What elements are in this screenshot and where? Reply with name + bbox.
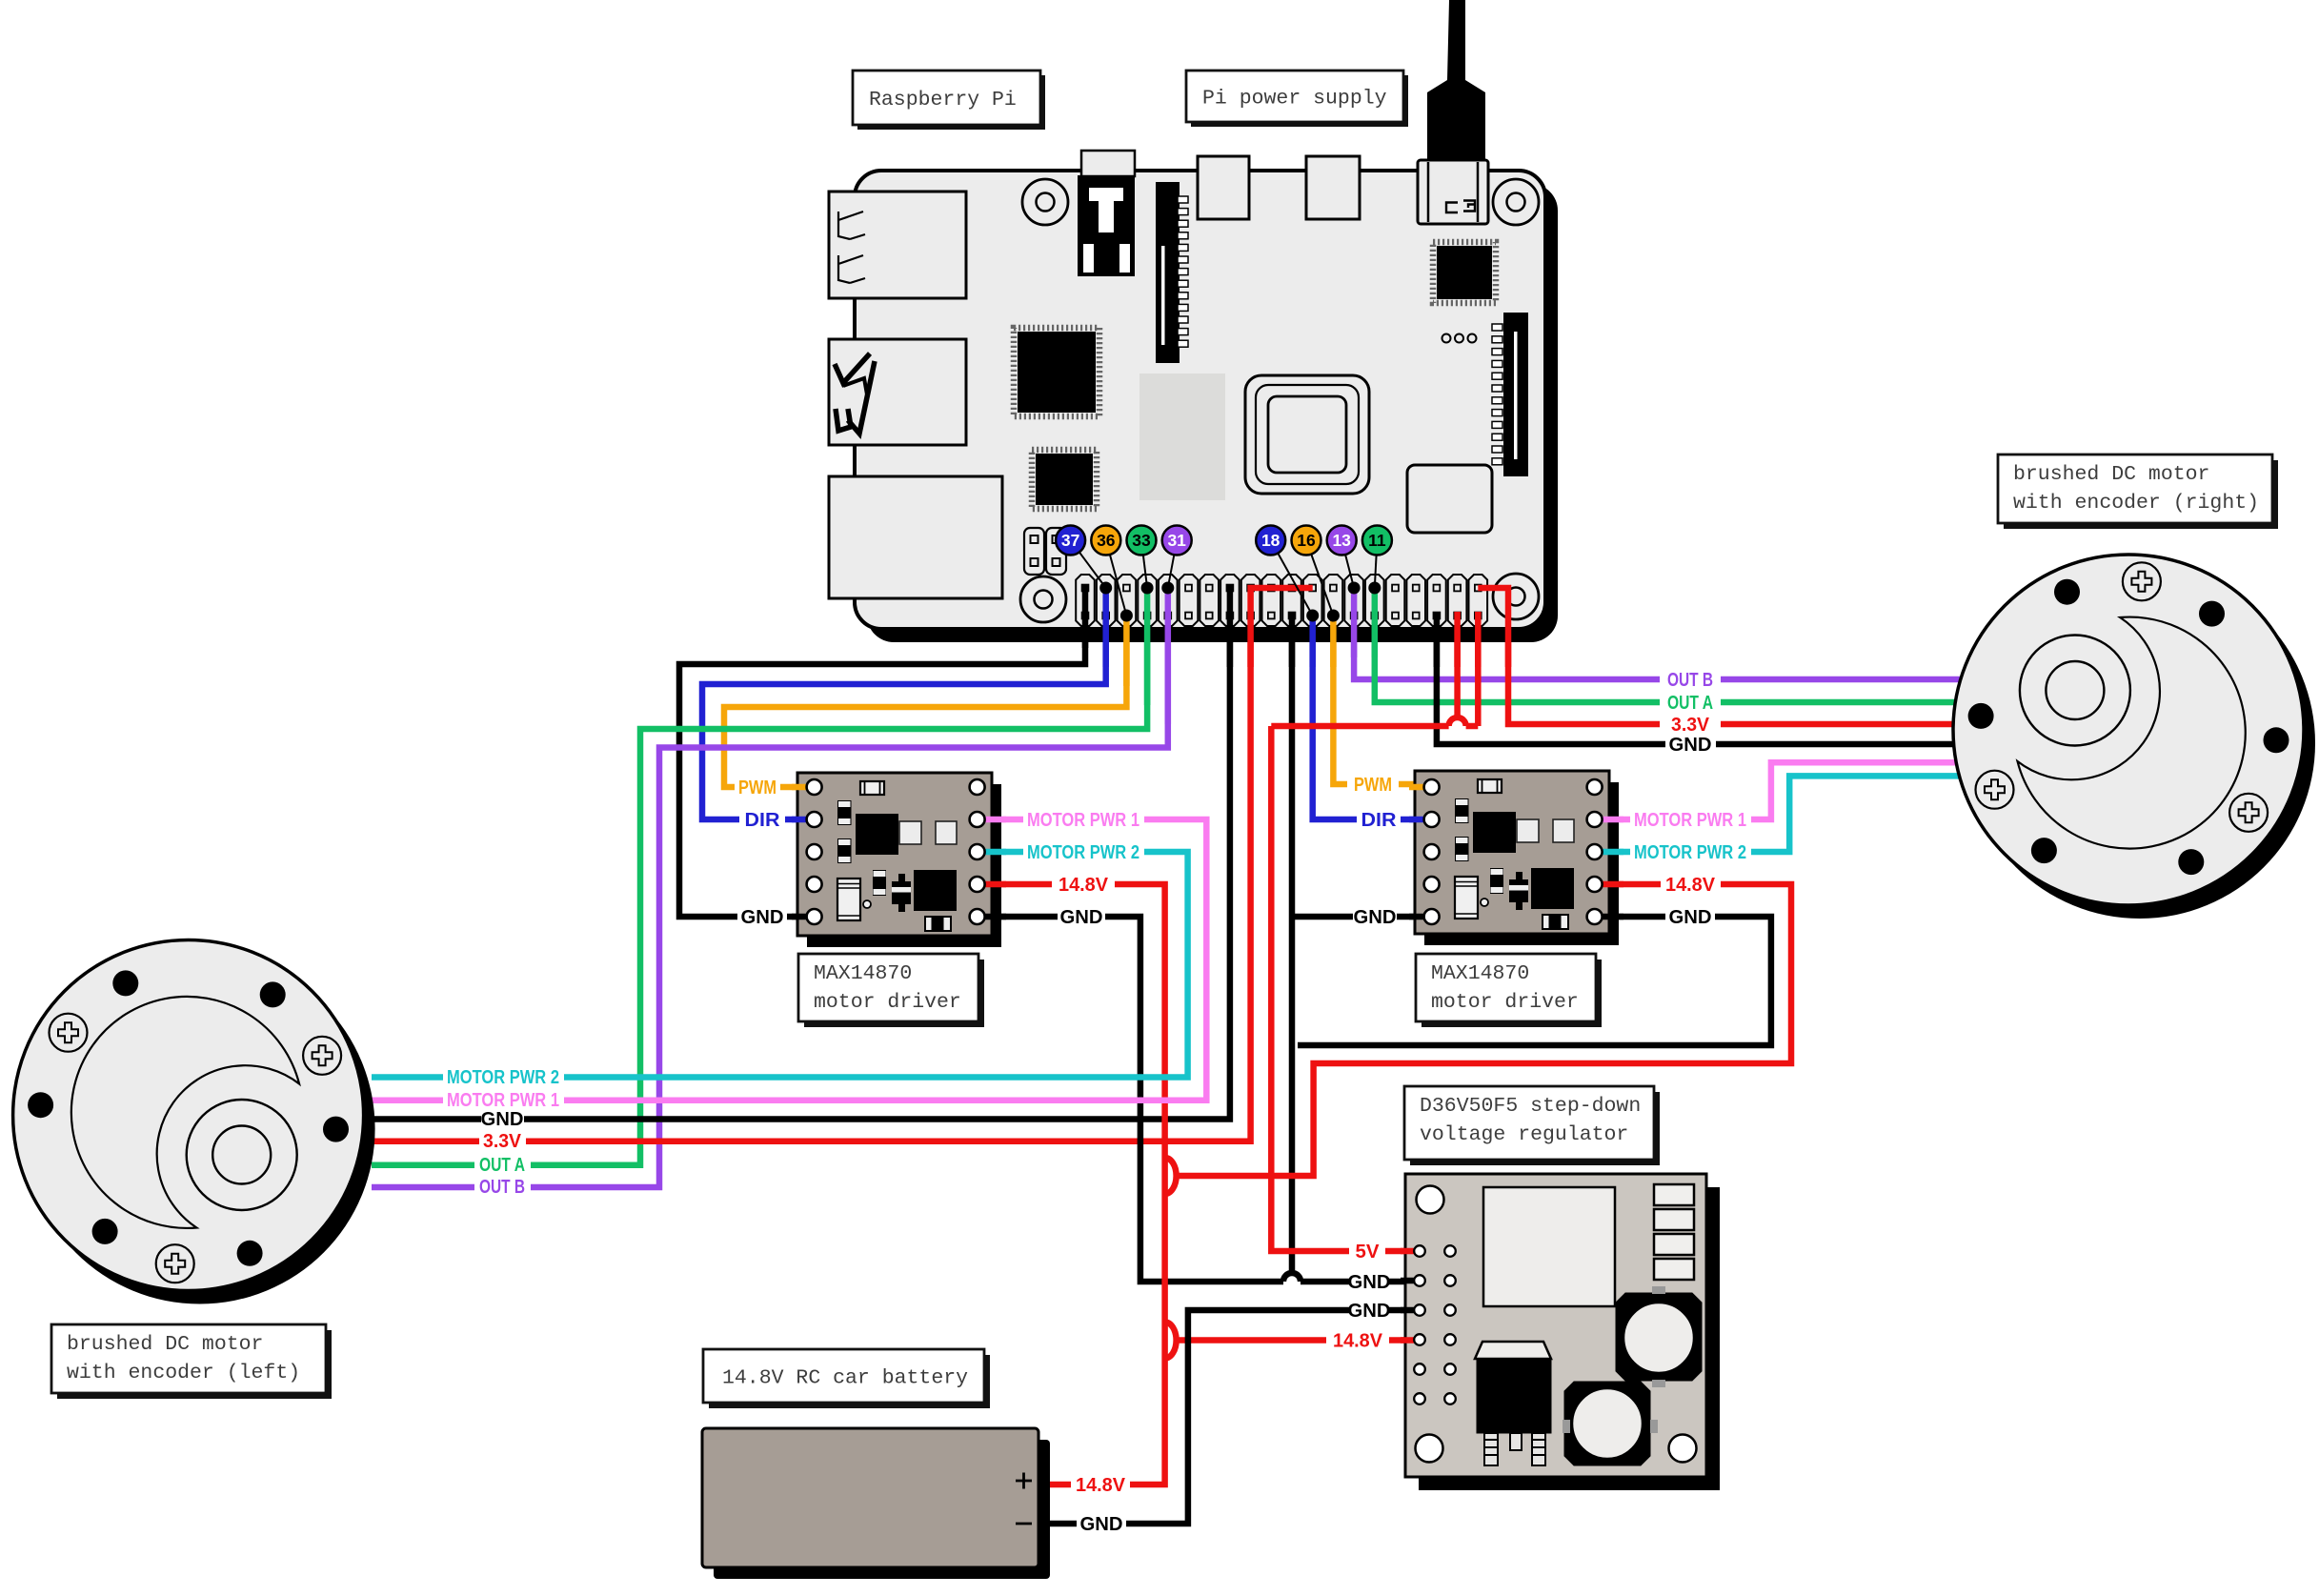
svg-text:Raspberry Pi: Raspberry Pi	[869, 89, 1017, 111]
svg-text:PWM: PWM	[738, 777, 776, 798]
svg-text:3.3V: 3.3V	[1671, 714, 1709, 736]
svg-text:13: 13	[1332, 531, 1351, 550]
svg-text:GND: GND	[1080, 1513, 1123, 1535]
svg-text:3.3V: 3.3V	[483, 1130, 521, 1152]
svg-text:D36V50F5 step-down: D36V50F5 step-down	[1420, 1095, 1641, 1118]
svg-text:11: 11	[1368, 531, 1386, 550]
svg-text:16: 16	[1297, 531, 1316, 550]
svg-text:37: 37	[1061, 531, 1079, 550]
svg-text:14.8V: 14.8V	[1333, 1330, 1382, 1352]
svg-text:MOTOR PWR 2: MOTOR PWR 2	[447, 1066, 559, 1088]
svg-text:DIR: DIR	[745, 809, 780, 831]
svg-text:PWM: PWM	[1354, 774, 1392, 796]
svg-text:MAX14870: MAX14870	[814, 962, 912, 985]
svg-text:14.8V RC car battery: 14.8V RC car battery	[722, 1367, 968, 1390]
svg-text:14.8V: 14.8V	[1059, 874, 1108, 896]
svg-text:brushed DC motor: brushed DC motor	[2013, 463, 2209, 486]
svg-text:GND: GND	[1354, 906, 1397, 928]
svg-text:GND: GND	[1060, 906, 1103, 928]
svg-text:36: 36	[1097, 531, 1116, 550]
svg-text:5V: 5V	[1356, 1241, 1380, 1263]
svg-text:33: 33	[1132, 531, 1151, 550]
svg-text:14.8V: 14.8V	[1665, 874, 1715, 896]
svg-text:MOTOR PWR 1: MOTOR PWR 1	[1634, 809, 1746, 831]
svg-text:OUT B: OUT B	[1667, 669, 1713, 691]
svg-text:MAX14870: MAX14870	[1431, 962, 1529, 985]
svg-text:OUT A: OUT A	[1667, 692, 1713, 714]
svg-text:OUT A: OUT A	[479, 1154, 525, 1176]
svg-text:MOTOR PWR 1: MOTOR PWR 1	[1027, 809, 1139, 831]
svg-text:brushed DC motor: brushed DC motor	[67, 1333, 263, 1356]
svg-text:18: 18	[1261, 531, 1280, 550]
svg-text:DIR: DIR	[1361, 809, 1397, 831]
svg-text:Pi power supply: Pi power supply	[1202, 88, 1387, 111]
svg-text:GND: GND	[741, 906, 784, 928]
svg-text:14.8V: 14.8V	[1076, 1474, 1125, 1496]
svg-text:voltage regulator: voltage regulator	[1420, 1123, 1628, 1146]
svg-text:with encoder (right): with encoder (right)	[2013, 492, 2259, 515]
svg-text:MOTOR PWR 2: MOTOR PWR 2	[1634, 841, 1746, 863]
svg-text:motor driver: motor driver	[814, 991, 961, 1014]
svg-text:MOTOR PWR 2: MOTOR PWR 2	[1027, 841, 1139, 863]
svg-text:GND: GND	[1348, 1271, 1391, 1293]
svg-text:OUT B: OUT B	[479, 1176, 525, 1198]
svg-text:with encoder (left): with encoder (left)	[67, 1362, 300, 1384]
svg-text:GND: GND	[1669, 906, 1712, 928]
svg-text:motor driver: motor driver	[1431, 991, 1579, 1014]
svg-text:GND: GND	[481, 1108, 524, 1130]
svg-text:GND: GND	[1348, 1300, 1391, 1322]
svg-text:GND: GND	[1669, 734, 1712, 756]
svg-text:31: 31	[1167, 531, 1186, 550]
